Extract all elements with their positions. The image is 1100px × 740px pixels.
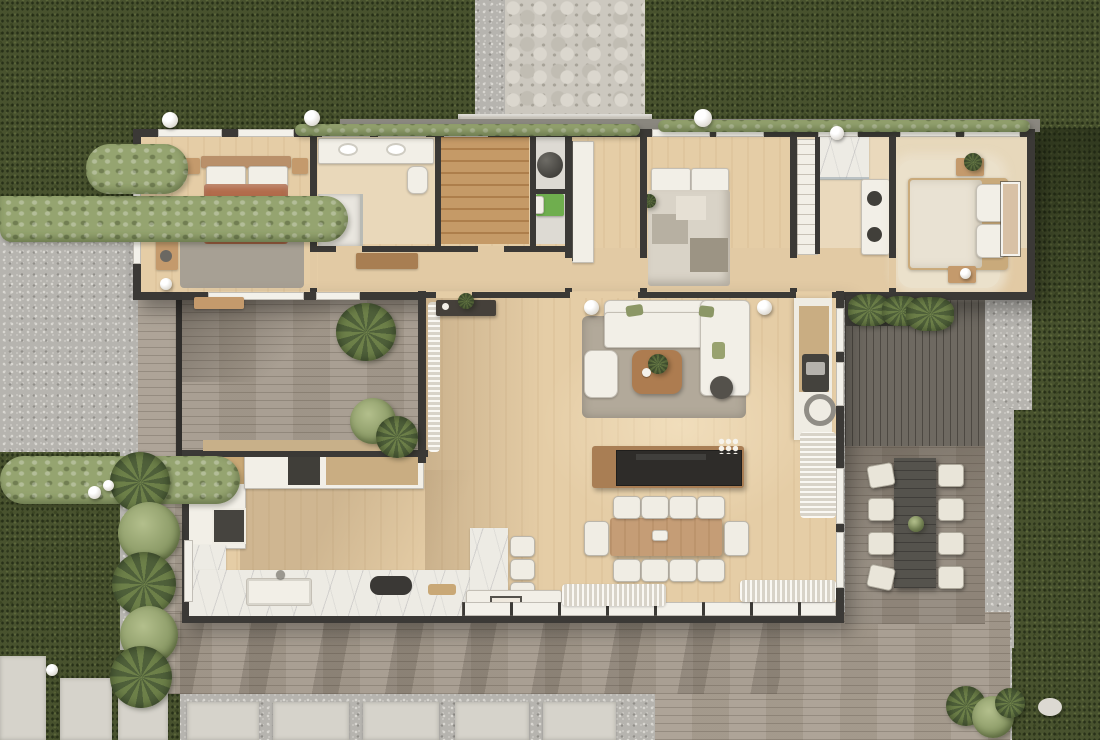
dining-curtain — [740, 580, 836, 602]
cooktop — [370, 576, 412, 595]
chaise-cushion-olive — [712, 342, 725, 359]
east-curtain — [800, 432, 836, 518]
hedge-row-top-left — [0, 196, 348, 242]
courtyard-monstera — [336, 303, 396, 361]
pendant-light — [584, 300, 599, 315]
outdoor-centrepiece — [908, 516, 924, 532]
wall-bath-closet — [435, 136, 441, 248]
dining-chair — [697, 496, 725, 519]
dining-chair — [641, 559, 669, 582]
paver — [455, 702, 529, 740]
dining-chair — [669, 496, 697, 519]
dining-chair — [669, 559, 697, 582]
gravel-strip-right-1 — [984, 292, 1032, 410]
dining-chair-end — [724, 521, 749, 556]
vanity-sink — [338, 143, 358, 156]
garden-light — [162, 112, 178, 128]
kitchen-dark-doors — [212, 508, 246, 544]
table-setting — [652, 530, 668, 541]
hall-console — [356, 253, 418, 269]
kitchen-faucet — [276, 570, 285, 579]
side-stool — [710, 376, 733, 399]
agave-plant — [110, 646, 172, 708]
dining-chair — [613, 559, 641, 582]
facade-shrub-strip — [658, 120, 1030, 132]
window — [238, 129, 294, 137]
island-cooktop-glint — [636, 454, 706, 460]
shower-2 — [819, 137, 869, 179]
deck-corner-plant — [995, 688, 1025, 718]
desk-ornament — [160, 250, 172, 262]
outdoor-chair — [938, 498, 964, 521]
bed3-mattress — [910, 180, 982, 268]
door-gap — [478, 246, 504, 252]
paver — [543, 702, 616, 740]
bed3-wall-art — [1001, 182, 1020, 256]
wall-laundry-divider — [530, 189, 566, 194]
wood-stove-front — [806, 362, 825, 375]
bed2-patch — [676, 196, 706, 220]
door-gap — [336, 246, 362, 252]
facade-shrub-strip — [295, 124, 640, 136]
bed2-pillow — [651, 168, 691, 192]
floor-plan-render — [0, 0, 1100, 740]
bed3-lamp — [960, 268, 971, 279]
east-window — [836, 468, 844, 524]
dining-chair-end — [584, 521, 609, 556]
nightstand — [292, 158, 308, 174]
double-vanity — [318, 138, 434, 164]
paver — [363, 702, 439, 740]
cutting-board — [428, 584, 456, 595]
kitchen-sink — [246, 578, 312, 606]
dining-chair — [697, 559, 725, 582]
east-window — [836, 362, 844, 406]
courtyard-east-wall — [418, 291, 426, 463]
sofa-cushion-olive — [625, 304, 643, 317]
paver-slab — [60, 678, 112, 740]
outdoor-chair — [868, 498, 894, 521]
bed2-pillow — [691, 168, 729, 192]
deck-tree-shadows — [180, 612, 780, 694]
courtyard-bench — [194, 297, 244, 309]
wall-bath2-inner — [815, 136, 820, 254]
garden-light — [694, 109, 712, 127]
east-window — [836, 308, 844, 352]
south-wall — [182, 616, 844, 623]
white-pebble — [1038, 698, 1062, 716]
courtyard-curtain — [428, 302, 440, 452]
door-gap — [889, 258, 896, 288]
door-gap — [790, 258, 797, 288]
outdoor-chair — [938, 566, 964, 589]
outdoor-chair — [938, 464, 964, 487]
sofa-cushion-olive — [698, 305, 714, 318]
garden-light — [46, 664, 58, 676]
wing-wall-right — [1027, 129, 1035, 300]
shower-glass — [360, 194, 363, 246]
entry-vase — [442, 303, 449, 310]
bed2-patch — [690, 238, 728, 272]
study-counter — [572, 141, 594, 263]
toilet — [407, 166, 428, 194]
bed3-plant — [964, 153, 982, 171]
bush-cluster — [86, 144, 188, 194]
vanity-sink — [386, 143, 406, 156]
island-flowers — [718, 438, 738, 454]
outdoor-chair — [868, 532, 894, 555]
pendant-light — [757, 300, 772, 315]
paver — [273, 702, 349, 740]
window — [158, 129, 222, 137]
vanity-2-basin — [867, 227, 882, 242]
west-shutter-window — [184, 540, 193, 602]
paver-slab — [0, 656, 46, 740]
bar-stool — [510, 536, 535, 557]
planter-foliage — [906, 297, 954, 331]
garden-light — [160, 278, 172, 290]
garden-light — [830, 126, 844, 140]
kitchen-appliance — [288, 457, 320, 485]
armchair — [584, 350, 618, 398]
vanity-2-basin — [867, 191, 882, 206]
coffee-table-plant — [648, 354, 668, 374]
garden-light — [103, 480, 114, 491]
dining-chair — [641, 496, 669, 519]
garden-light — [88, 486, 101, 499]
outdoor-chair — [938, 532, 964, 555]
courtyard-pot-plant — [376, 416, 418, 458]
stone-entry-path — [505, 0, 645, 118]
laundry-sphere — [537, 152, 563, 178]
east-window — [836, 532, 844, 588]
paver — [187, 702, 259, 740]
outdoor-chair — [866, 462, 896, 489]
door-gap — [310, 252, 317, 288]
entry-plant — [458, 293, 474, 309]
door-gap — [640, 258, 647, 288]
dining-curtain — [562, 584, 666, 606]
walk-in-closet — [441, 136, 529, 244]
garden-light — [304, 110, 320, 126]
kitchen-open-shelf — [326, 457, 418, 485]
dining-chair — [613, 496, 641, 519]
coffee-table-bowl — [642, 368, 651, 377]
bar-stool — [510, 559, 535, 580]
door-gap — [565, 258, 572, 288]
stove-flue-ring — [804, 394, 836, 426]
